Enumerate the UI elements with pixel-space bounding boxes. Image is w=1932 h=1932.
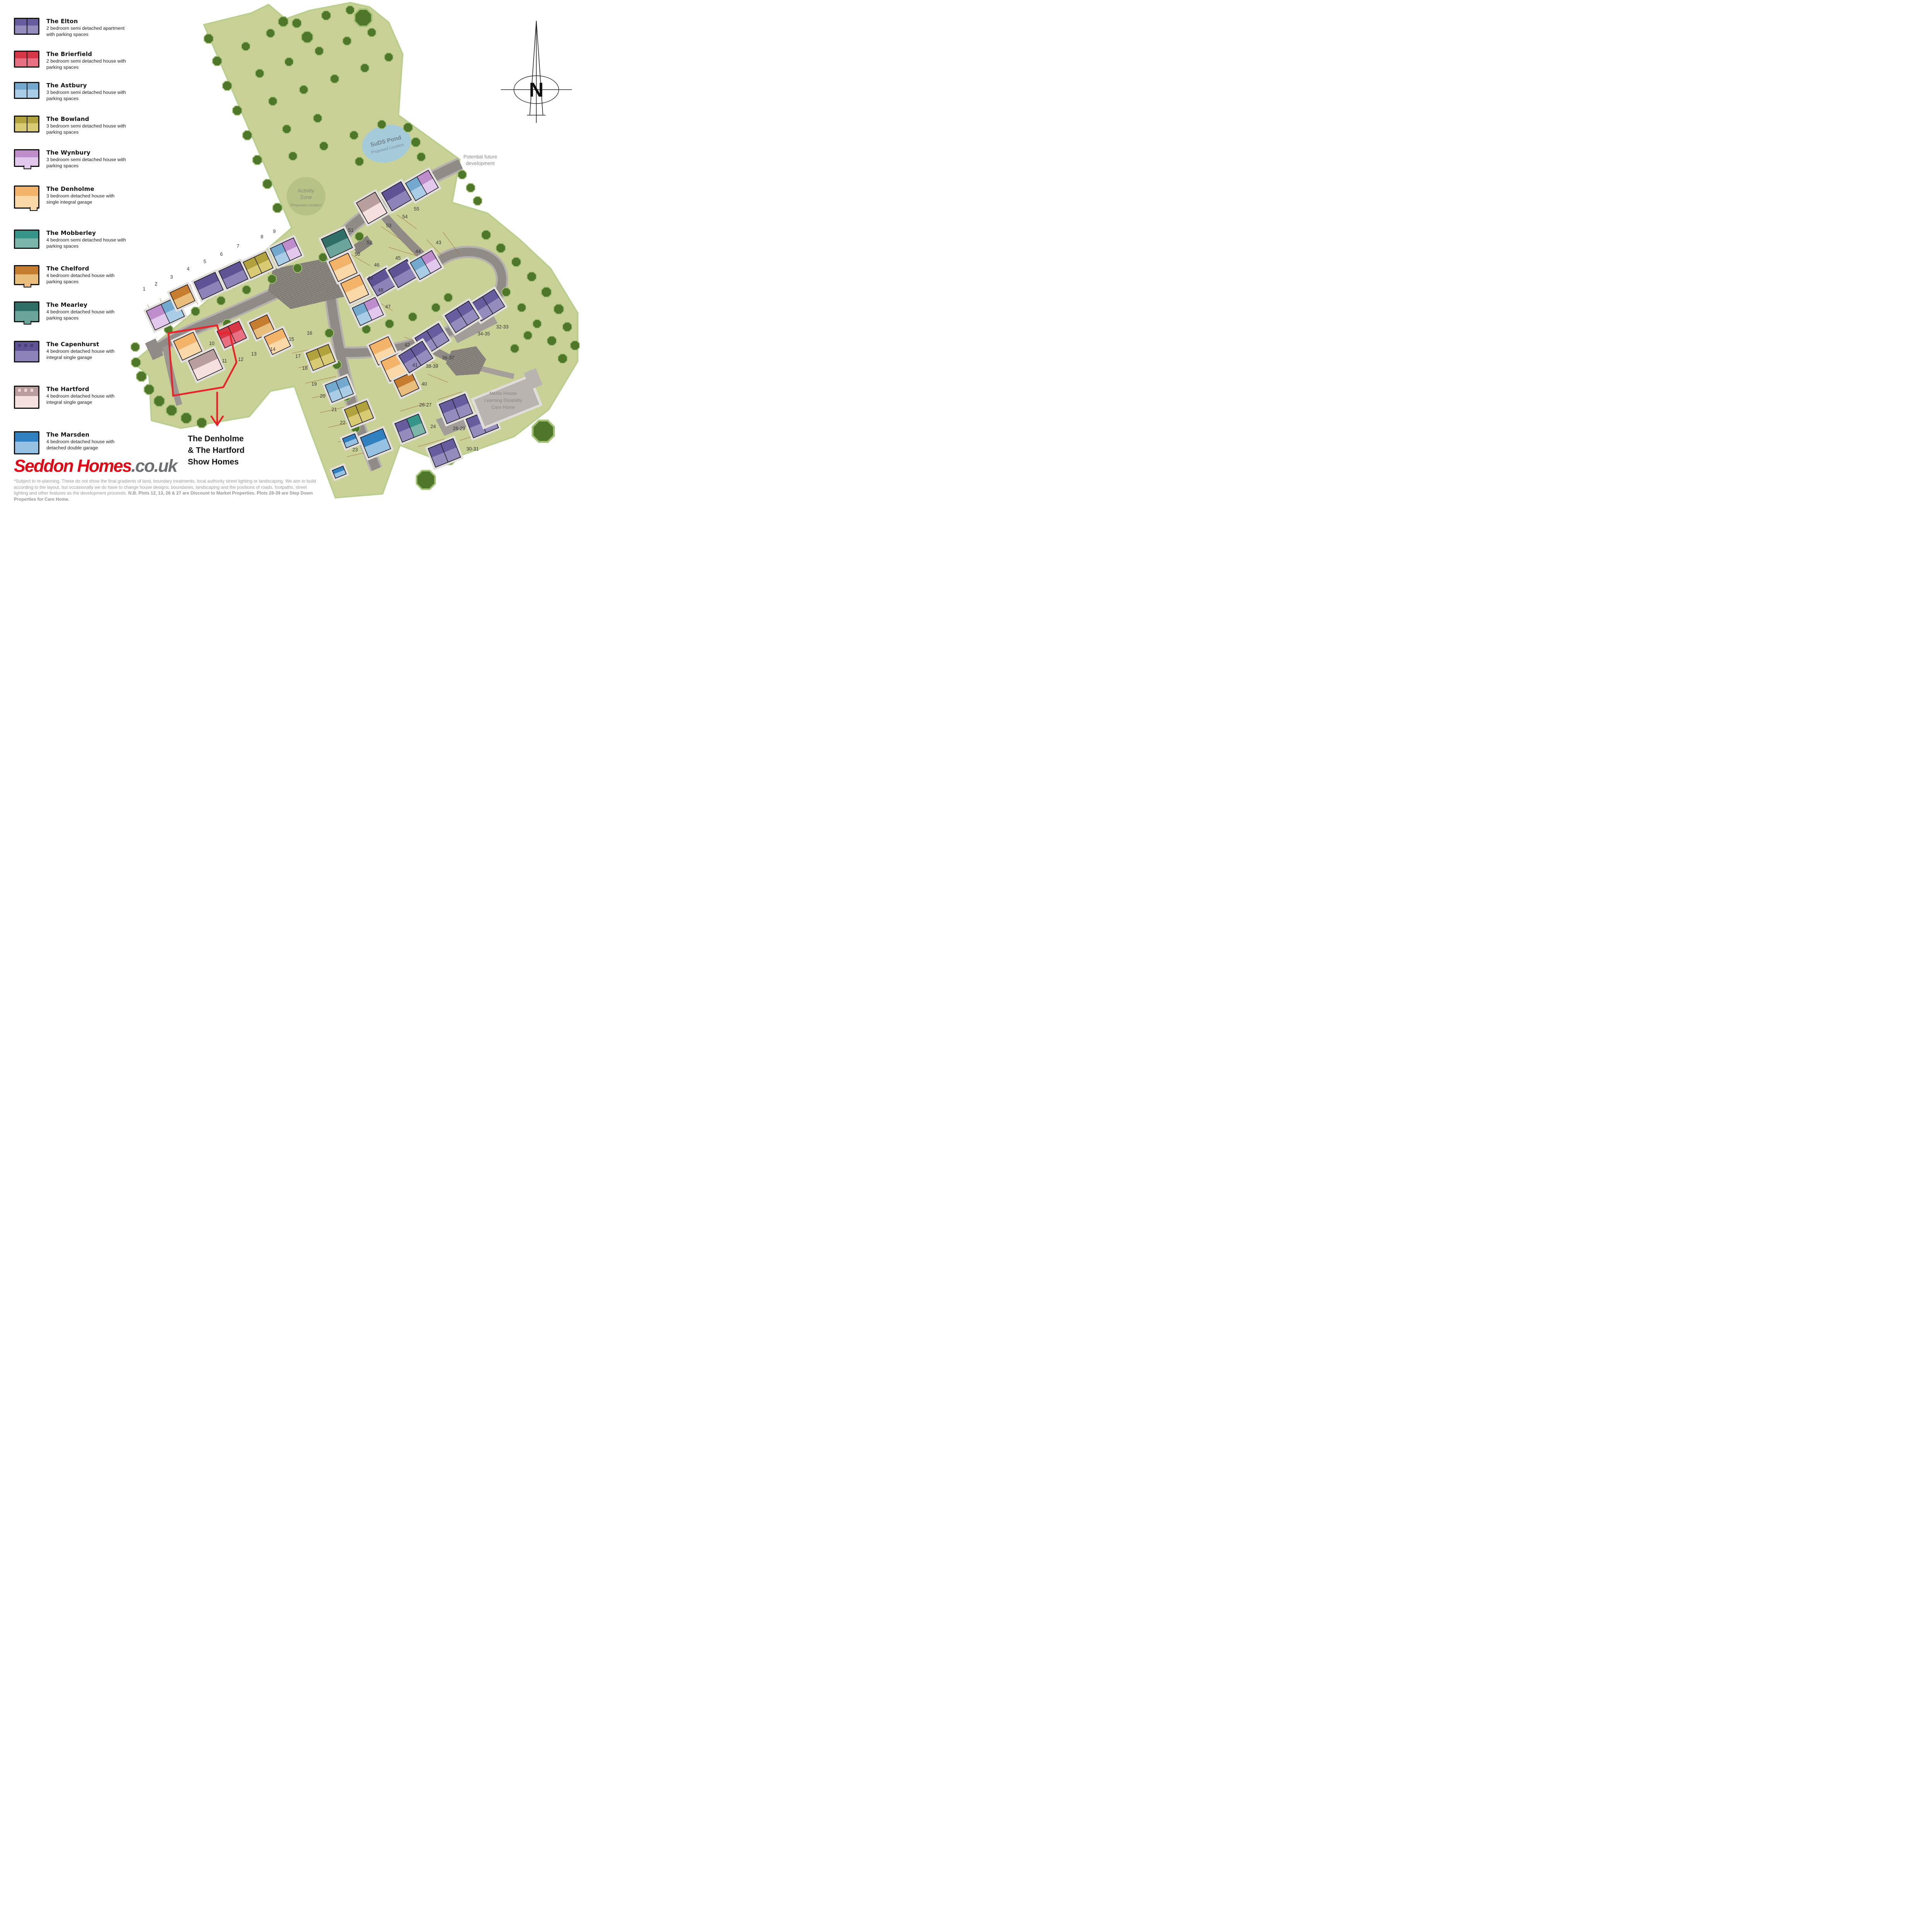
tree-icon: [269, 97, 277, 105]
tree-icon: [432, 303, 440, 312]
site-plan-map: 1234567891011121314151617181920212223242…: [0, 0, 580, 499]
plot-label-22: 22: [340, 420, 345, 425]
legend-name: The Brierfield: [46, 51, 128, 58]
tree-icon: [204, 34, 213, 43]
legend-name: The Bowland: [46, 116, 128, 122]
legend-desc: 4 bedroom detached house with detached d…: [46, 439, 128, 451]
site-plan-page: { "legend": { "items": [ {"id":"elton","…: [0, 0, 580, 499]
tree-icon: [361, 64, 369, 72]
tree-icon: [466, 184, 475, 192]
tree-icon: [532, 420, 554, 442]
tree-icon: [166, 405, 177, 416]
legend-name: The Chelford: [46, 265, 128, 272]
plot-label-32-33: 32-33: [496, 324, 509, 330]
legend-item-marsden: The Marsden4 bedroom detached house with…: [14, 431, 128, 454]
legend-name: The Mearley: [46, 301, 128, 308]
legend-name: The Marsden: [46, 431, 128, 438]
svg-text:Merlin House: Merlin House: [490, 391, 517, 396]
legend-item-mobberley: The Mobberley4 bedroom semi detached hou…: [14, 230, 128, 250]
legend-desc: 4 bedroom detached house with parking sp…: [46, 273, 128, 285]
tree-icon: [268, 275, 276, 283]
tree-icon: [136, 371, 146, 381]
legend-item-hartford: The Hartford4 bedroom detached house wit…: [14, 386, 128, 409]
tree-icon: [325, 329, 333, 337]
svg-text:Proposed Location: Proposed Location: [291, 203, 321, 207]
legend-name: The Mobberley: [46, 230, 128, 236]
plot-label-3: 3: [170, 274, 173, 280]
legend-item-bowland: The Bowland3 bedroom semi detached house…: [14, 116, 128, 136]
plot-label-54: 54: [402, 214, 408, 219]
plot-label-26-27: 26-27: [419, 402, 432, 408]
tree-icon: [320, 142, 328, 150]
tree-icon: [289, 152, 297, 160]
svg-text:Show Homes: Show Homes: [188, 457, 239, 466]
svg-text:The Denholme: The Denholme: [188, 434, 244, 443]
tree-icon: [282, 125, 291, 133]
tree-icon: [355, 157, 364, 166]
plot-label-38-39: 38-39: [426, 364, 438, 369]
plot-label-6: 6: [220, 252, 223, 257]
legend-desc: 4 bedroom detached house with integral s…: [46, 349, 128, 361]
tree-icon: [517, 303, 526, 312]
tree-icon: [191, 307, 200, 316]
compass-north-icon: N: [501, 21, 572, 123]
plot-label-18: 18: [302, 366, 308, 371]
bowland-swatch-icon: [14, 116, 39, 133]
tree-icon: [278, 17, 288, 27]
tree-icon: [533, 320, 541, 328]
tree-icon: [213, 56, 222, 66]
tree-icon: [253, 155, 262, 165]
tree-icon: [350, 131, 358, 139]
tree-icon: [558, 354, 567, 363]
plot-label-53: 53: [386, 223, 391, 228]
tree-icon: [233, 106, 242, 115]
tree-icon: [510, 344, 519, 353]
legend-name: The Astbury: [46, 82, 128, 89]
tree-icon: [181, 413, 192, 423]
tree-icon: [285, 58, 293, 66]
tree-icon: [481, 230, 491, 240]
plot-label-41: 41: [412, 362, 418, 368]
plot-label-12: 12: [238, 357, 243, 362]
show-homes-label: The Denholme & The Hartford Show Homes: [188, 434, 245, 466]
tree-icon: [408, 313, 417, 321]
svg-text:& The Hartford: & The Hartford: [188, 446, 245, 455]
plot-label-21: 21: [332, 407, 337, 412]
plot-label-17: 17: [295, 354, 301, 359]
tree-icon: [197, 418, 207, 428]
svg-text:development: development: [466, 160, 495, 166]
plot-label-13: 13: [251, 351, 257, 357]
tree-icon: [255, 69, 264, 78]
legend-desc: 3 bedroom semi detached house with parki…: [46, 157, 128, 169]
plot-label-46: 46: [374, 262, 379, 268]
tree-icon: [131, 343, 139, 351]
legend-desc: 4 bedroom detached house with parking sp…: [46, 309, 128, 321]
elton-swatch-icon: [14, 18, 39, 35]
tree-icon: [417, 153, 425, 161]
tree-icon: [343, 37, 351, 45]
legend-desc: 2 bedroom semi detached house with parki…: [46, 58, 128, 71]
plot-label-19: 19: [311, 381, 317, 387]
tree-icon: [154, 396, 165, 406]
capenhurst-swatch-icon: [14, 341, 39, 362]
plot-label-7: 7: [237, 243, 240, 249]
tree-icon: [144, 384, 154, 395]
tree-icon: [411, 138, 420, 147]
legend-name: The Wynbury: [46, 149, 128, 156]
plot-label-45: 45: [395, 255, 401, 261]
tree-icon: [403, 123, 413, 132]
plot-label-20: 20: [320, 393, 325, 399]
plot-label-16: 16: [307, 330, 312, 336]
legend-desc: 2 bedroom semi detached apartment with p…: [46, 26, 128, 38]
marsden-swatch-icon: [14, 431, 39, 454]
legend-item-mearley: The Mearley4 bedroom detached house with…: [14, 301, 128, 322]
tree-icon: [313, 114, 322, 122]
tree-icon: [299, 85, 308, 94]
tree-icon: [444, 293, 452, 302]
seddon-homes-logo: Seddon Homes.co.uk: [14, 456, 177, 476]
plot-label-55: 55: [414, 206, 419, 212]
plot-label-11: 11: [222, 358, 227, 364]
legend-desc: 4 bedroom detached house with integral s…: [46, 393, 128, 406]
tree-icon: [321, 11, 331, 20]
plot-label-4: 4: [187, 266, 190, 272]
brierfield-swatch-icon: [14, 51, 39, 68]
tree-icon: [378, 120, 386, 129]
plot-label-15: 15: [289, 337, 294, 342]
tree-icon: [273, 203, 282, 213]
mobberley-swatch-icon: [14, 230, 39, 249]
plot-label-8: 8: [261, 234, 264, 240]
legend-desc: 3 bedroom semi detached house with parki…: [46, 123, 128, 136]
legend-item-wynbury: The Wynbury3 bedroom semi detached house…: [14, 149, 128, 169]
plot-label-1: 1: [143, 286, 146, 292]
tree-icon: [527, 272, 536, 281]
tree-icon: [301, 31, 313, 43]
tree-icon: [346, 6, 354, 14]
tree-icon: [241, 42, 250, 51]
plot-label-30-31: 30-31: [466, 446, 479, 452]
plot-label-36-37: 36-37: [442, 355, 454, 361]
tree-icon: [541, 287, 551, 297]
tree-icon: [223, 81, 232, 90]
svg-text:Learning Disability: Learning Disability: [484, 398, 522, 403]
legend-item-brierfield: The Brierfield2 bedroom semi detached ho…: [14, 51, 128, 71]
plot-label-10: 10: [209, 341, 214, 346]
plot-label-48: 48: [378, 287, 383, 293]
svg-text:Care Home: Care Home: [491, 405, 515, 410]
logo-suffix: .co.uk: [131, 456, 177, 476]
tree-icon: [512, 257, 521, 267]
tree-icon: [355, 9, 372, 26]
plot-label-49: 49: [367, 276, 373, 281]
tree-icon: [570, 341, 580, 350]
tree-icon: [292, 19, 301, 28]
plot-label-43: 43: [436, 240, 441, 245]
svg-text:N: N: [529, 79, 544, 101]
tree-icon: [242, 286, 251, 294]
tree-icon: [458, 170, 466, 179]
svg-text:Activity: Activity: [298, 188, 315, 194]
future-development-label: Potential future development: [463, 154, 497, 166]
chelford-swatch-icon: [14, 265, 39, 285]
tree-icon: [502, 288, 510, 296]
hartford-swatch-icon: [14, 386, 39, 409]
tree-icon: [266, 29, 275, 37]
logo-brand: Seddon Homes: [14, 456, 131, 476]
tree-icon: [554, 304, 564, 314]
plot-label-9: 9: [273, 229, 276, 234]
legend-item-denholme: The Denholme3 bedroom detached house wit…: [14, 185, 128, 209]
astbury-swatch-icon: [14, 82, 39, 99]
legend-desc: 3 bedroom detached house with single int…: [46, 193, 128, 206]
plot-label-44: 44: [415, 249, 421, 254]
tree-icon: [563, 322, 572, 332]
plot-label-42: 42: [405, 342, 410, 348]
legend-name: The Hartford: [46, 386, 128, 393]
legend-item-chelford: The Chelford4 bedroom detached house wit…: [14, 265, 128, 285]
tree-icon: [355, 232, 364, 241]
tree-icon: [524, 331, 532, 340]
legend-name: The Capenhurst: [46, 341, 128, 348]
svg-text:Zone: Zone: [300, 194, 312, 200]
plot-label-51: 51: [348, 228, 354, 233]
legend-desc: 4 bedroom semi detached house with parki…: [46, 237, 128, 250]
tree-icon: [217, 296, 225, 305]
legend-name: The Elton: [46, 18, 128, 25]
tree-icon: [243, 131, 252, 140]
tree-icon: [315, 47, 323, 55]
tree-icon: [263, 179, 272, 189]
legend-item-capenhurst: The Capenhurst4 bedroom detached house w…: [14, 341, 128, 362]
legend-item-astbury: The Astbury3 bedroom semi detached house…: [14, 82, 128, 102]
legend-item-elton: The Elton2 bedroom semi detached apartme…: [14, 18, 128, 38]
disclaimer-text: *Subject to re-planning. These do not sh…: [14, 478, 316, 502]
tree-icon: [547, 336, 556, 345]
plot-label-23: 23: [352, 447, 358, 452]
plot-label-14: 14: [270, 347, 276, 352]
tree-icon: [330, 75, 339, 83]
tree-icon: [496, 243, 505, 253]
denholme-swatch-icon: [14, 185, 39, 209]
plot-label-50: 50: [355, 252, 360, 257]
tree-icon: [293, 264, 302, 272]
plot-label-52: 52: [367, 240, 372, 245]
wynbury-swatch-icon: [14, 149, 39, 167]
plot-label-40: 40: [422, 381, 427, 387]
legend-name: The Denholme: [46, 185, 128, 192]
tree-icon: [385, 320, 394, 328]
legend-desc: 3 bedroom semi detached house with parki…: [46, 90, 128, 102]
plot-label-47: 47: [385, 304, 391, 310]
plot-label-24: 24: [430, 424, 436, 429]
tree-icon: [417, 471, 435, 489]
tree-icon: [473, 197, 482, 205]
tree-icon: [367, 28, 376, 37]
svg-text:Potential future: Potential future: [463, 154, 497, 160]
plot-label-28-29: 28-29: [453, 426, 465, 431]
tree-icon: [384, 53, 393, 61]
mearley-swatch-icon: [14, 301, 39, 322]
tree-icon: [131, 358, 141, 367]
plot-label-2: 2: [155, 281, 158, 287]
plot-label-34-35: 34-35: [478, 331, 490, 337]
plot-label-5: 5: [204, 259, 206, 264]
